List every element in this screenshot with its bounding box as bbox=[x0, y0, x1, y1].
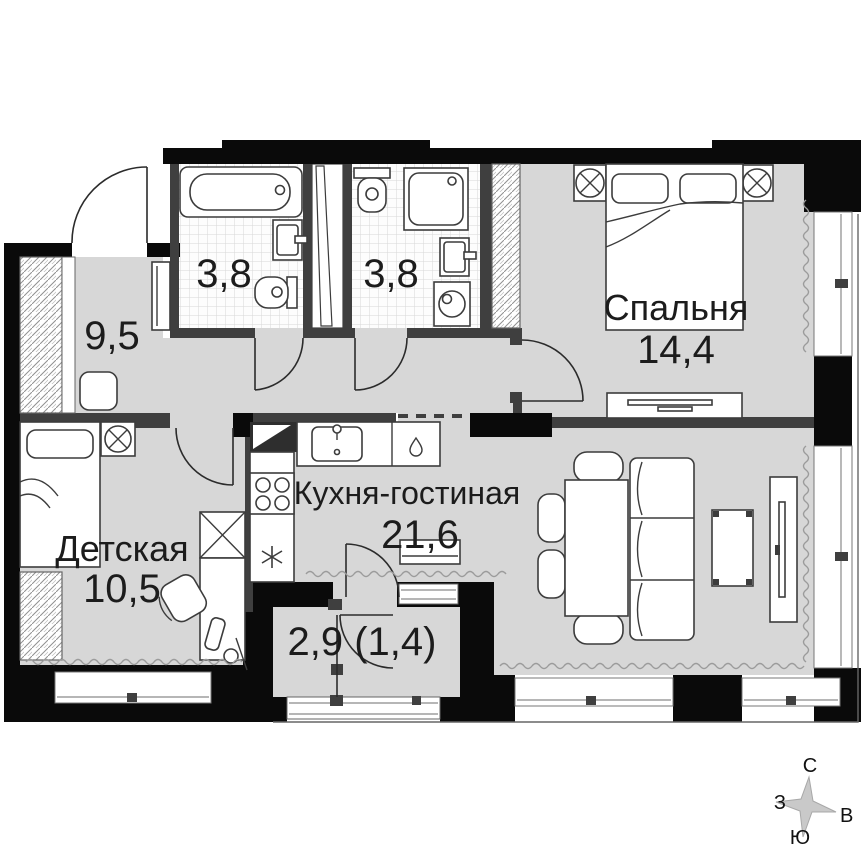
sink-icon bbox=[273, 220, 307, 260]
window-children-south bbox=[55, 672, 211, 703]
dining-table-icon bbox=[565, 480, 628, 616]
compass-east: В bbox=[840, 805, 853, 827]
floor-plan-svg: 9,5 3,8 3,8 Спальня 14,4 Кухня-гостиная … bbox=[0, 0, 864, 864]
room-label-kitchen-living: Кухня-гостиная bbox=[294, 475, 520, 511]
dining-chair-bottom bbox=[574, 614, 623, 644]
hallway-closet-front bbox=[62, 257, 75, 413]
room-area-balcony: 2,9 (1,4) bbox=[288, 620, 437, 664]
room-label-children: Детская bbox=[55, 528, 188, 569]
window-bedroom-east bbox=[814, 212, 852, 356]
kitchen-sink-icon bbox=[312, 425, 362, 461]
coffee-table-icon bbox=[712, 510, 753, 586]
desk-icon bbox=[200, 512, 247, 670]
entry-door bbox=[72, 167, 147, 243]
window-kitchen-balcony bbox=[399, 584, 458, 604]
window-living-south-1 bbox=[515, 678, 673, 706]
dresser-icon bbox=[607, 393, 742, 418]
room-label-bedroom: Спальня bbox=[604, 287, 749, 328]
room-area-hallway: 9,5 bbox=[84, 314, 140, 358]
room-area-bedroom: 14,4 bbox=[637, 328, 715, 372]
window-living-south-2 bbox=[742, 678, 840, 706]
tv-console-icon bbox=[770, 477, 797, 622]
kitchen-counter-top bbox=[297, 422, 440, 466]
hallway-closet-icon bbox=[20, 257, 62, 413]
compass-west: З bbox=[774, 792, 786, 814]
nightstand-right-icon bbox=[741, 165, 773, 201]
ceiling-lamp-icon bbox=[101, 422, 135, 456]
floor-plan-page: 9,5 3,8 3,8 Спальня 14,4 Кухня-гостиная … bbox=[0, 0, 864, 864]
hallway-cabinet-icon bbox=[152, 262, 170, 330]
toilet-icon bbox=[255, 277, 297, 308]
washing-machine-icon bbox=[434, 282, 470, 326]
compass-south: Ю bbox=[790, 827, 810, 849]
stove-icon bbox=[250, 473, 294, 514]
dining-chair-left-1 bbox=[538, 494, 565, 542]
room-area-kitchen-living: 21,6 bbox=[381, 513, 459, 557]
nightstand-left-icon bbox=[574, 165, 606, 201]
dining-chair-top bbox=[574, 452, 623, 482]
room-area-bathroom-2: 3,8 bbox=[363, 252, 419, 296]
sofa-icon bbox=[630, 458, 694, 640]
bathtub-icon bbox=[180, 167, 302, 217]
room-area-children: 10,5 bbox=[83, 567, 161, 611]
bedroom-wardrobe-icon bbox=[492, 164, 520, 328]
compass-rose: С З В Ю bbox=[774, 755, 853, 849]
tall-cabinet-icon bbox=[250, 422, 297, 452]
shower-icon bbox=[404, 168, 468, 230]
window-living-east bbox=[814, 446, 852, 668]
balcony-glazing bbox=[287, 695, 440, 719]
pouf-icon bbox=[80, 372, 117, 410]
dining-chair-left-2 bbox=[538, 550, 565, 598]
children-wardrobe-icon bbox=[20, 572, 62, 660]
toilet-icon bbox=[354, 168, 390, 212]
compass-north: С bbox=[803, 755, 817, 777]
room-area-bathroom-1: 3,8 bbox=[196, 252, 252, 296]
